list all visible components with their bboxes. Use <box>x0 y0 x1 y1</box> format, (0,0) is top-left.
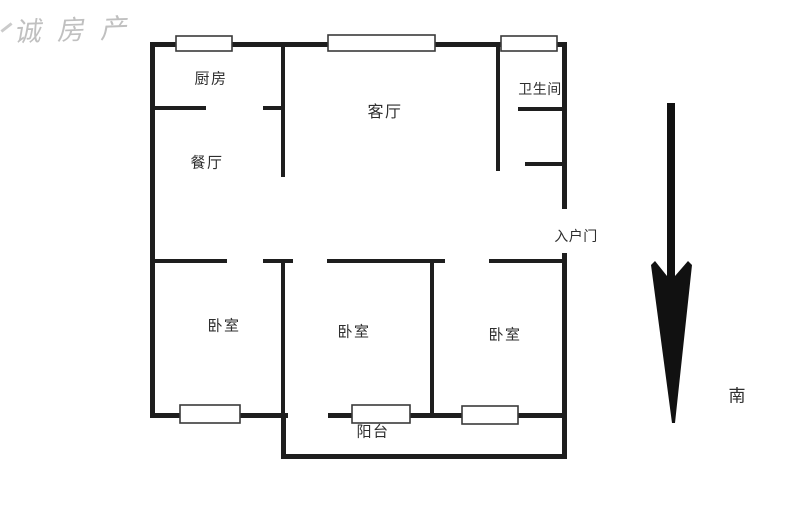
window-bedroom-1 <box>180 405 240 423</box>
wall-corridor-d <box>489 259 567 263</box>
room-label-bathroom: 卫生间 <box>518 79 562 99</box>
entrance-door-label: 入户门 <box>554 226 598 246</box>
room-label-dining: 餐厅 <box>190 152 223 173</box>
south-arrow-icon <box>651 103 692 423</box>
wall-bedroom-divider-2 <box>430 259 434 418</box>
wall-corridor-b <box>263 259 293 263</box>
wall-bathroom-stub-upper <box>518 107 567 111</box>
wall-right-lower <box>562 253 567 459</box>
wall-balcony-left <box>281 413 286 459</box>
wall-right-upper <box>562 42 567 209</box>
room-label-bedroom-2: 卧室 <box>337 321 370 342</box>
wall-left <box>150 42 155 418</box>
wall-kitchen-bottom-right <box>263 106 285 110</box>
wall-corridor-a <box>150 259 227 263</box>
room-label-bedroom-3: 卧室 <box>488 324 521 345</box>
compass-south-label: 南 <box>729 382 746 407</box>
floorplan-drawing <box>0 0 800 511</box>
room-label-bedroom-1: 卧室 <box>207 315 240 336</box>
wall-balcony-bottom <box>281 454 567 459</box>
window-bathroom <box>501 36 557 51</box>
wall-bathroom-left <box>496 42 500 171</box>
wall-bathroom-stub-lower <box>525 162 567 166</box>
window-bedroom-3 <box>462 406 518 424</box>
wall-corridor-c <box>327 259 445 263</box>
window-living <box>328 35 435 51</box>
room-label-kitchen: 厨房 <box>194 68 227 89</box>
wall-bedroom-divider-1 <box>281 259 285 418</box>
room-label-balcony: 阳台 <box>356 421 389 442</box>
window-kitchen <box>176 36 232 51</box>
wall-kitchen-bottom-left <box>150 106 206 110</box>
room-label-living: 客厅 <box>367 98 402 122</box>
floorplan-page: 诚房产 <box>0 0 800 511</box>
